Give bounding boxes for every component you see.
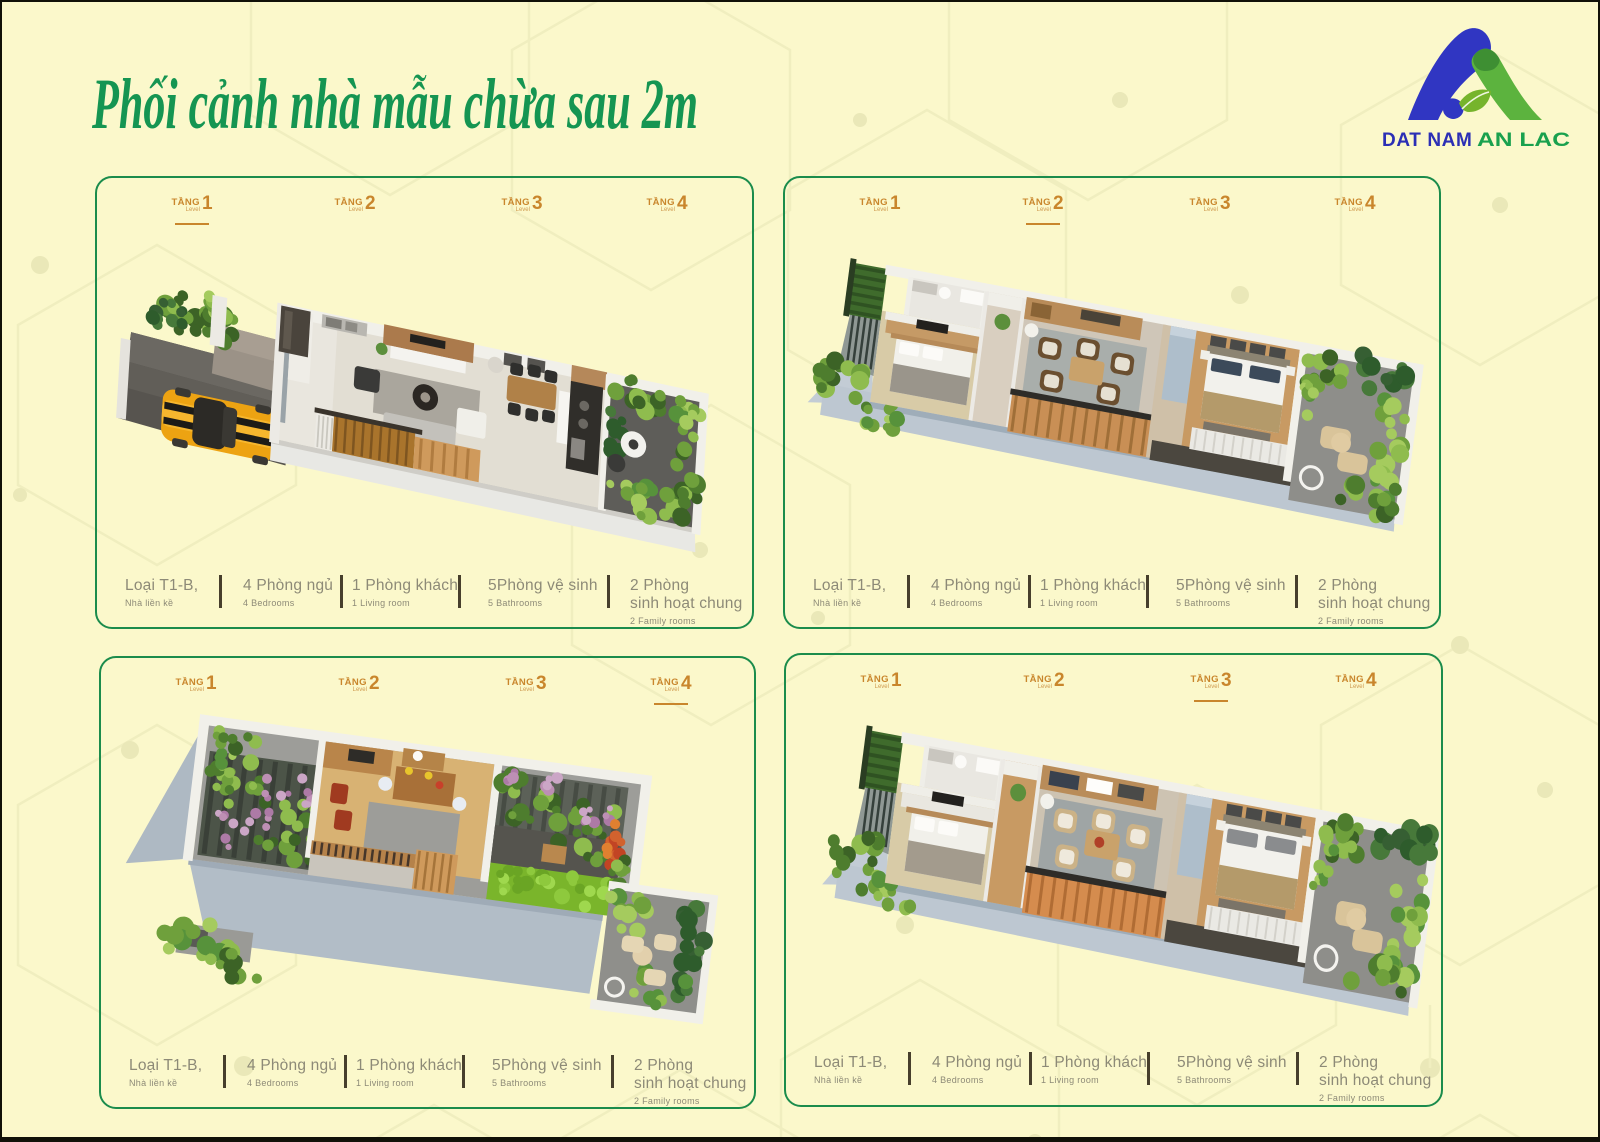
svg-text:DAT NAM: DAT NAM	[1382, 130, 1472, 151]
svg-text:Phối cảnh nhà mẫu chừa sau 2m: Phối cảnh nhà mẫu chừa sau 2m	[91, 64, 698, 144]
svg-text:AN LAC: AN LAC	[1477, 129, 1570, 151]
